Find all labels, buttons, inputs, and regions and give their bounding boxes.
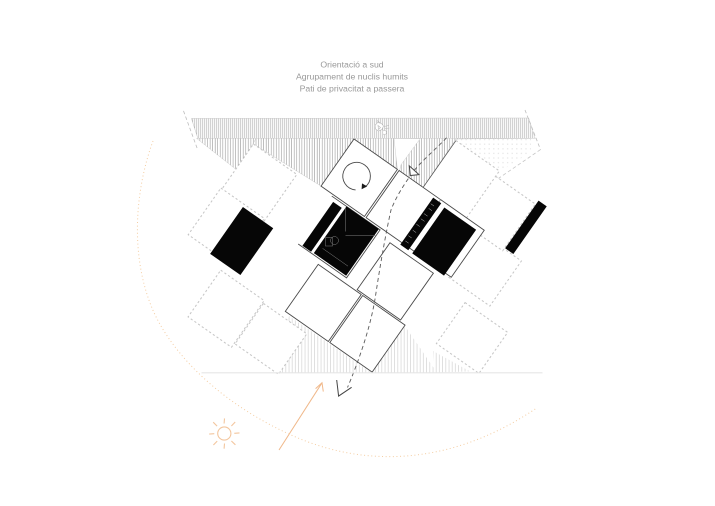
svg-text:Pati de privacitat a passera: Pati de privacitat a passera [300, 84, 405, 94]
svg-text:Agrupament de nuclis humits: Agrupament de nuclis humits [296, 72, 409, 82]
svg-text:Orientació a sud: Orientació a sud [320, 60, 383, 70]
